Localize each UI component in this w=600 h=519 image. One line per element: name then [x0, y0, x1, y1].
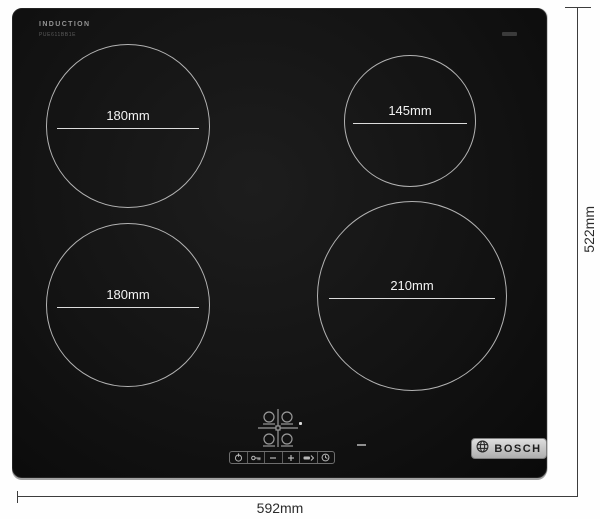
- model-label: PUE611BB1E: [39, 32, 76, 38]
- width-dimension-label: 592mm: [213, 500, 347, 516]
- cooking-zone-rear-left: 180mm: [46, 44, 210, 208]
- cooking-zone-rear-right: 145mm: [344, 55, 476, 187]
- width-dimension-line: [18, 496, 578, 497]
- cooking-zone-front-right: 210mm: [317, 201, 507, 391]
- cooking-zone-front-left: 180mm: [46, 223, 210, 387]
- key-lock-icon: [248, 452, 266, 463]
- bosch-logo-text: BOSCH: [494, 443, 541, 455]
- bosch-logo-badge: BOSCH: [471, 438, 547, 459]
- zone-diameter-label: 210mm: [318, 278, 506, 293]
- zone-diameter-line: [329, 298, 494, 299]
- induction-hob: INDUCTION PUE611BB1E 180mm 145mm 180mm 2…: [12, 8, 547, 478]
- indicator-dash: [357, 444, 366, 446]
- bosch-symbol-icon: [476, 440, 489, 458]
- zone-diameter-line: [353, 123, 467, 124]
- zone-diameter-line: [57, 307, 200, 308]
- zone-diameter-label: 180mm: [47, 287, 209, 302]
- height-dimension-end-tick: [565, 7, 591, 8]
- zone-diameter-line: [57, 128, 200, 129]
- zone-diameter-label: 145mm: [345, 103, 475, 118]
- serial-mark: [502, 32, 517, 36]
- product-dimension-diagram: INDUCTION PUE611BB1E 180mm 145mm 180mm 2…: [0, 0, 600, 519]
- plus-icon: [283, 452, 301, 463]
- zone-selector-icon: [258, 409, 298, 452]
- timer-icon: [318, 452, 335, 463]
- width-dimension-end-tick: [17, 491, 18, 503]
- touch-control-strip: [229, 451, 335, 464]
- power-icon: [230, 452, 248, 463]
- height-dimension-label: 522mm: [581, 206, 597, 253]
- boost-icon: [300, 452, 318, 463]
- height-dimension-line: [577, 8, 578, 497]
- minus-icon: [265, 452, 283, 463]
- zone-diameter-label: 180mm: [47, 108, 209, 123]
- induction-label: INDUCTION: [39, 21, 91, 28]
- indicator-dot: [299, 422, 302, 425]
